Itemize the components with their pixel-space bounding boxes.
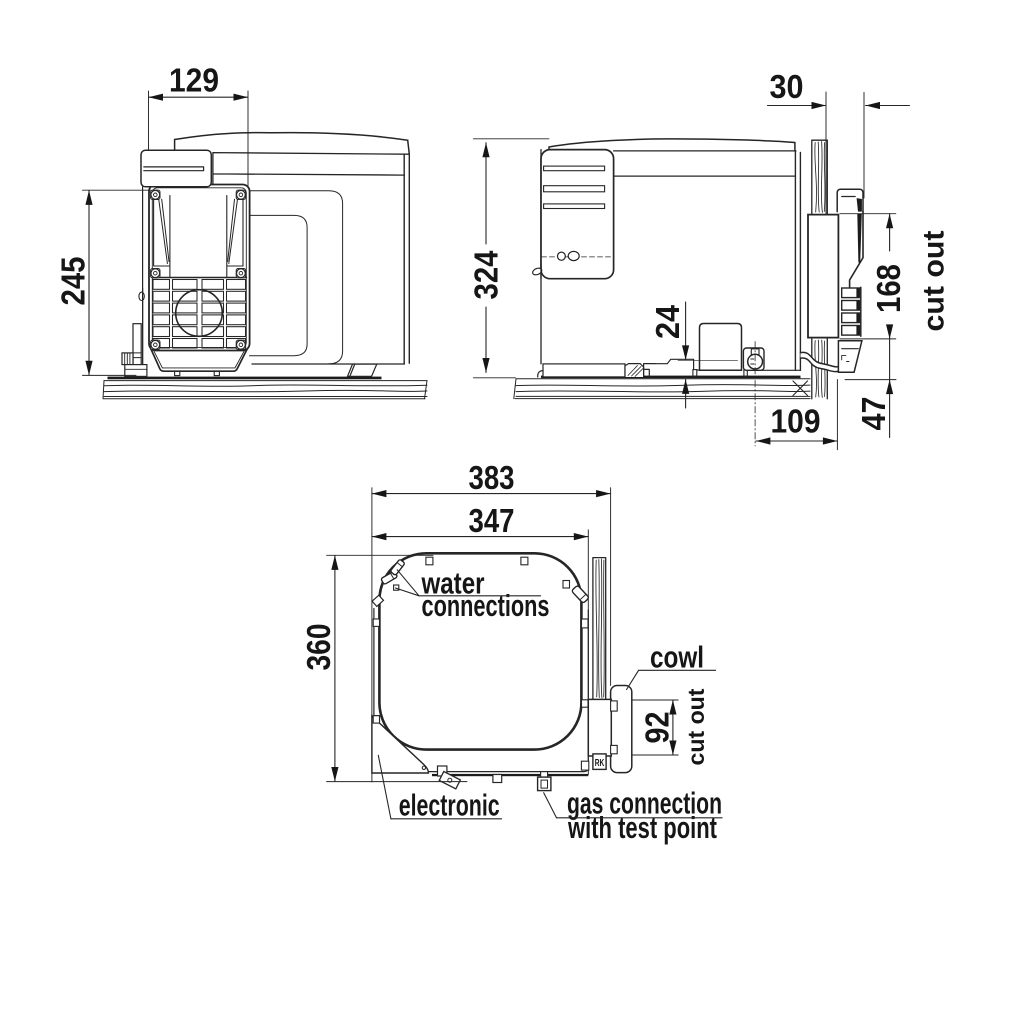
svg-text:109: 109 [771, 403, 821, 440]
svg-text:92: 92 [638, 712, 675, 744]
svg-text:245: 245 [55, 257, 92, 306]
svg-text:168: 168 [870, 264, 907, 313]
svg-text:cowl: cowl [650, 640, 704, 675]
svg-text:cut out: cut out [918, 230, 951, 331]
svg-text:with test point: with test point [567, 810, 717, 845]
svg-text:347: 347 [469, 502, 515, 539]
svg-text:electronic: electronic [399, 788, 500, 823]
svg-text:324: 324 [467, 250, 504, 300]
svg-text:383: 383 [469, 459, 515, 496]
svg-text:360: 360 [300, 624, 337, 671]
svg-text:RK: RK [595, 757, 605, 769]
svg-text:connections: connections [422, 588, 550, 623]
svg-text:cut out: cut out [683, 688, 709, 765]
svg-text:129: 129 [169, 62, 219, 99]
svg-text:30: 30 [770, 68, 804, 105]
svg-text:47: 47 [855, 397, 892, 431]
svg-text:24: 24 [649, 304, 686, 339]
